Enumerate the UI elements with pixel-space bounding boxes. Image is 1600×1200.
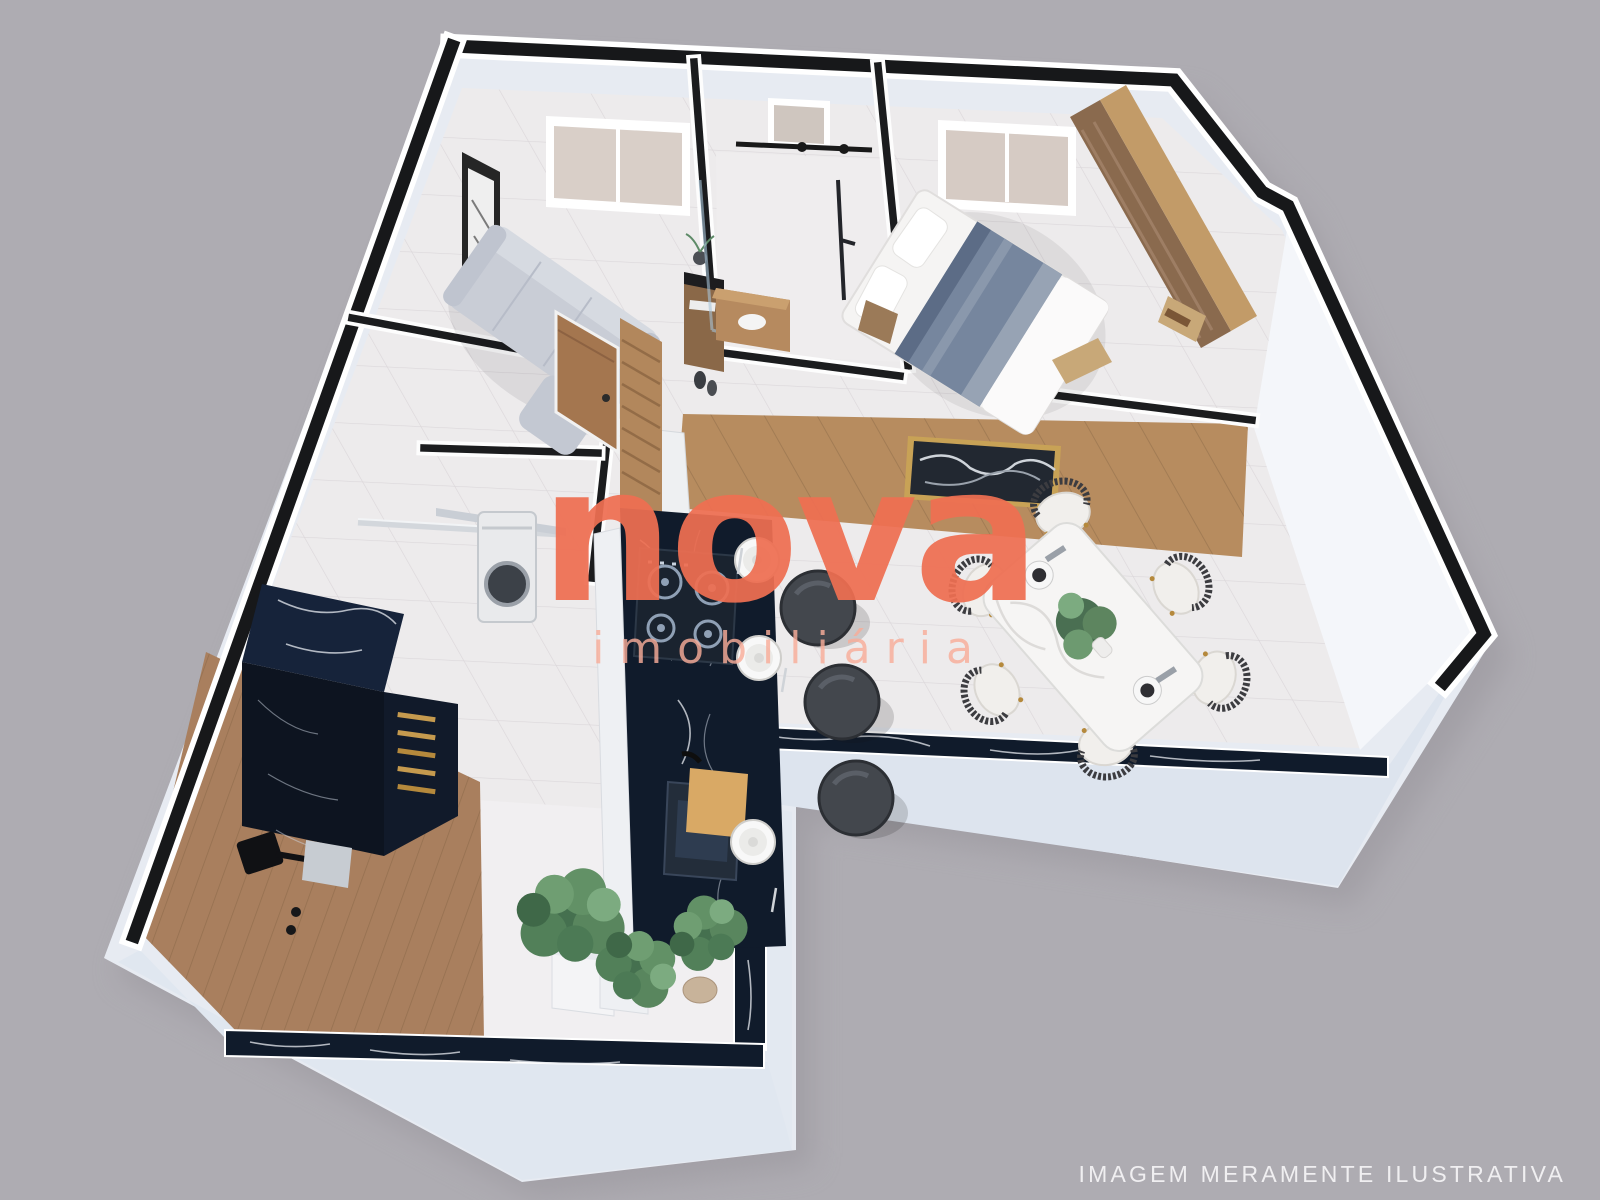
cooktop [634, 548, 738, 664]
clay-pot [683, 977, 717, 1003]
shower-handle [291, 907, 301, 917]
bedroom-window [938, 120, 1076, 216]
page-background: { "scene": { "type": "3d-isometric-floor… [0, 0, 1600, 1200]
living-window [546, 116, 690, 216]
shower-plate [302, 840, 352, 888]
disclaimer-text: IMAGEM MERAMENTE ILUSTRATIVA [1079, 1161, 1566, 1188]
dining-wall-art [904, 436, 1061, 509]
slat-divider [620, 318, 662, 540]
washing-machine [478, 512, 536, 622]
floorplan-rendering [0, 0, 1600, 1200]
bathroom-window [768, 98, 830, 150]
shower-handle [286, 925, 296, 935]
door-handle [602, 394, 610, 402]
